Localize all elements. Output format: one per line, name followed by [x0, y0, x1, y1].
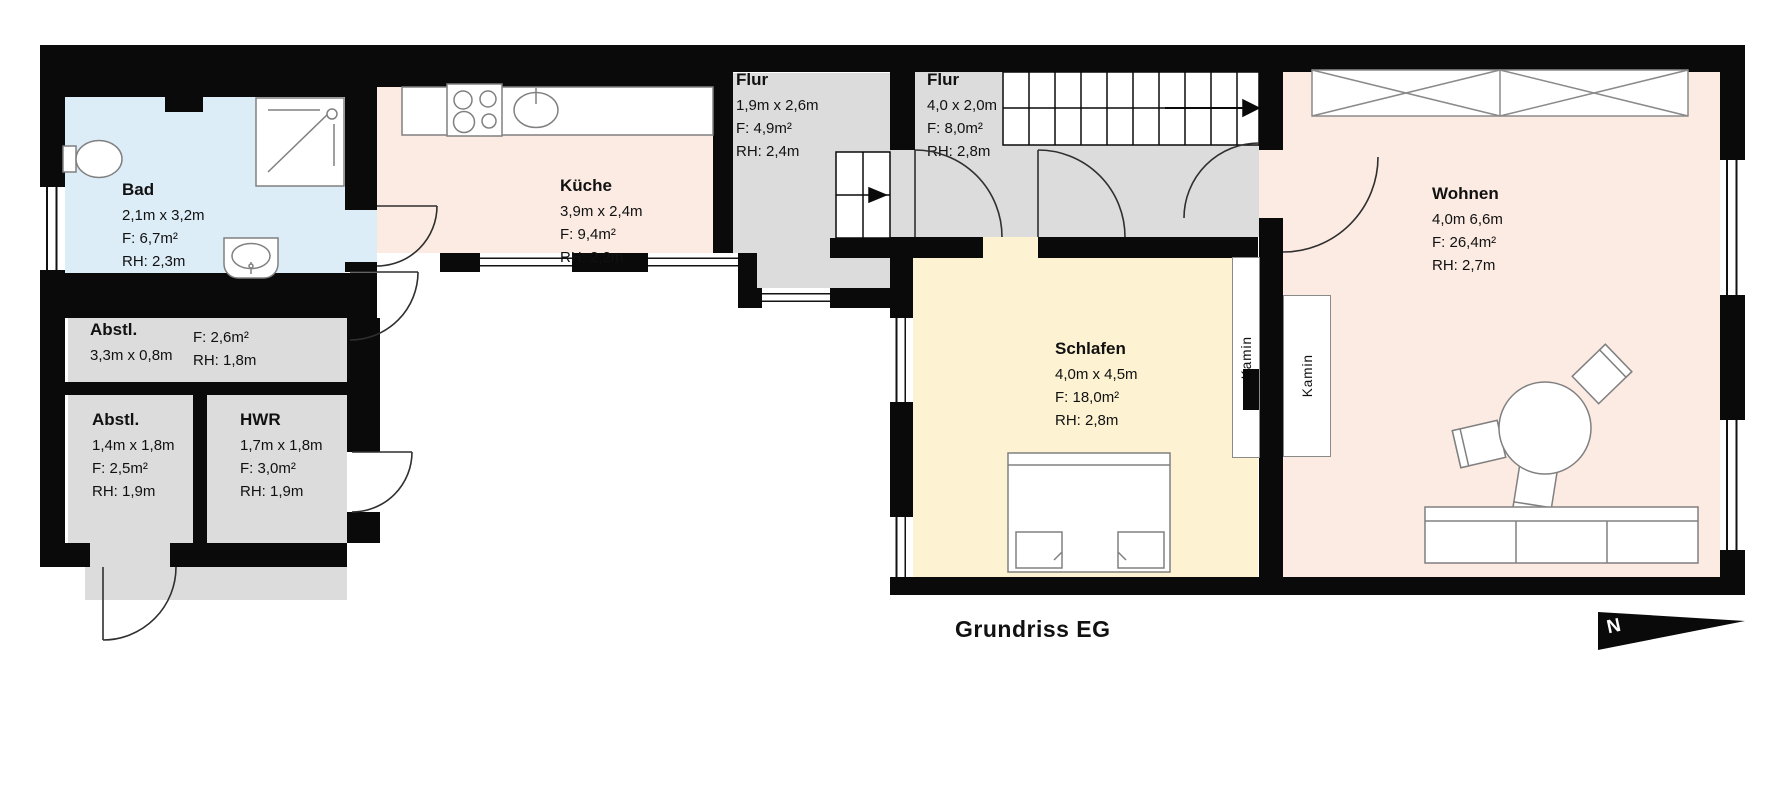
room-dims: 1,7m x 1,8m — [240, 434, 323, 457]
wall — [193, 392, 207, 543]
wall — [40, 45, 733, 87]
room-label-wohnen: Wohnen 4,0m 6,6m F: 26,4m² RH: 2,7m — [1432, 184, 1503, 277]
wall — [40, 273, 377, 318]
room-label-hwr: HWR 1,7m x 1,8m F: 3,0m² RH: 1,9m — [240, 410, 323, 503]
floor-plan-canvas: Kamin Kamin Bad 2,1m x 3,2m F: 6,7m² RH:… — [0, 0, 1775, 807]
wall — [890, 63, 915, 150]
room-dims: 4,0m 6,6m — [1432, 208, 1503, 231]
room-kueche — [377, 87, 713, 253]
room-height: RH: 2,3m — [122, 250, 205, 273]
room-height: RH: 1,9m — [240, 480, 323, 503]
wall — [40, 543, 347, 567]
chimney-schlafen: Kamin — [1232, 257, 1260, 458]
room-height: RH: 2,7m — [1432, 254, 1503, 277]
room-label-flur2: Flur 4,0 x 2,0m F: 8,0m² RH: 2,8m — [927, 70, 997, 163]
window — [480, 253, 572, 272]
window — [1720, 160, 1745, 295]
room-label-bad: Bad 2,1m x 3,2m F: 6,7m² RH: 2,3m — [122, 180, 205, 273]
room-flur1-south — [757, 253, 890, 288]
room-dims: 4,0 x 2,0m — [927, 94, 997, 117]
room-name: Abstl. — [92, 410, 175, 430]
wall — [713, 63, 733, 253]
room-dims: 3,9m x 2,4m — [560, 200, 643, 223]
room-name: Wohnen — [1432, 184, 1503, 204]
wall — [830, 238, 890, 258]
wall — [165, 87, 203, 112]
room-flur-opening — [890, 150, 915, 237]
room-name: Abstl. — [90, 320, 173, 340]
window — [890, 318, 913, 402]
entry-step — [85, 567, 347, 600]
room-area: F: 6,7m² — [122, 227, 205, 250]
room-label-abstl2: Abstl. 1,4m x 1,8m F: 2,5m² RH: 1,9m — [92, 410, 175, 503]
wall — [890, 237, 1258, 258]
room-name: Küche — [560, 176, 643, 196]
door-gap-hwr — [347, 452, 380, 512]
room-area: F: 9,4m² — [560, 223, 643, 246]
room-dims: 1,9m x 2,6m — [736, 94, 819, 117]
window — [648, 253, 738, 272]
room-name: Flur — [736, 70, 819, 90]
room-area: F: 4,9m² — [736, 117, 819, 140]
room-label-flur1: Flur 1,9m x 2,6m F: 4,9m² RH: 2,4m — [736, 70, 819, 163]
room-height: RH: 2,2m — [560, 246, 643, 269]
window — [762, 288, 830, 308]
room-area: F: 2,6m² — [193, 326, 256, 349]
north-label: N — [1605, 615, 1623, 639]
wall — [890, 577, 1745, 595]
window — [40, 187, 65, 270]
room-name: HWR — [240, 410, 323, 430]
room-name: Bad — [122, 180, 205, 200]
room-name: Schlafen — [1055, 339, 1138, 359]
room-dims: 1,4m x 1,8m — [92, 434, 175, 457]
room-area: F: 2,5m² — [92, 457, 175, 480]
room-height: RH: 2,8m — [927, 140, 997, 163]
room-label-kueche: Küche 3,9m x 2,4m F: 9,4m² RH: 2,2m — [560, 176, 643, 269]
door-gap-entry — [90, 543, 170, 567]
wall — [713, 45, 1745, 72]
room-bad — [65, 97, 345, 273]
room-area: F: 3,0m² — [240, 457, 323, 480]
chimney-label: Kamin — [1300, 354, 1315, 397]
room-dims: 4,0m x 4,5m — [1055, 363, 1138, 386]
door-gap-wohnen — [1259, 150, 1283, 218]
plan-title: Grundriss EG — [955, 616, 1111, 643]
wall — [1259, 45, 1283, 595]
door-gap-kueche-south — [377, 253, 440, 272]
room-label-schlafen: Schlafen 4,0m x 4,5m F: 18,0m² RH: 2,8m — [1055, 339, 1138, 432]
room-area: F: 18,0m² — [1055, 386, 1138, 409]
room-height: RH: 1,8m — [193, 349, 256, 372]
window — [1720, 420, 1745, 550]
chimney-block — [1243, 369, 1259, 410]
room-dims: 3,3m x 0,8m — [90, 344, 173, 367]
room-area: F: 8,0m² — [927, 117, 997, 140]
room-height: RH: 2,8m — [1055, 409, 1138, 432]
chimney-wohnen: Kamin — [1283, 295, 1331, 457]
room-name: Flur — [927, 70, 997, 90]
door-gap-schlafen — [983, 237, 1038, 258]
room-area: F: 26,4m² — [1432, 231, 1503, 254]
room-height: RH: 1,9m — [92, 480, 175, 503]
room-wohnen — [1283, 72, 1720, 577]
door-gap-bad — [345, 210, 377, 262]
room-height: RH: 2,4m — [736, 140, 819, 163]
room-label-abstl1-values: F: 2,6m² RH: 1,8m — [193, 326, 256, 372]
window — [890, 517, 913, 577]
room-label-abstl1: Abstl. 3,3m x 0,8m — [90, 320, 173, 367]
room-dims: 2,1m x 3,2m — [122, 204, 205, 227]
